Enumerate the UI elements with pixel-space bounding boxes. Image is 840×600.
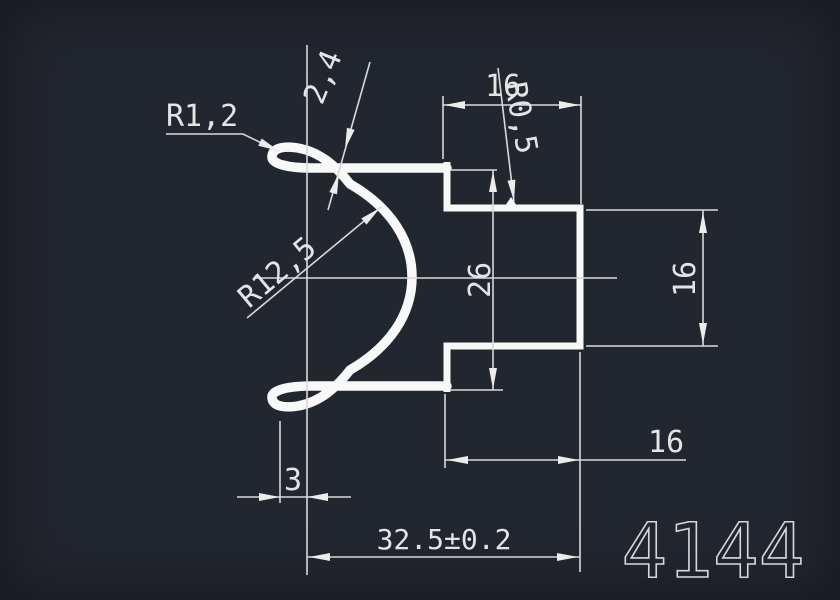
arrowhead [558, 456, 579, 464]
label-height-opening: 26 [463, 262, 498, 298]
label-height-right: 16 [668, 261, 703, 297]
label-radius-main: R12,5 [232, 230, 324, 315]
label-radius-hook-tip: R1,2 [166, 99, 238, 134]
label-hook-offset: 3 [284, 463, 302, 498]
label-radius-corner: R0,5 [497, 79, 544, 156]
arrowhead [447, 456, 468, 464]
dimension-labels: R1,2 16 R0,5 2,4 R12,5 26 16 16 3 32.5±0… [166, 46, 703, 556]
arrowhead [309, 553, 330, 561]
dimension-lines [166, 62, 718, 572]
arrowhead [341, 128, 354, 150]
arrowhead [559, 101, 580, 109]
arrowhead [259, 493, 280, 501]
technical-drawing-svg: R1,2 16 R0,5 2,4 R12,5 26 16 16 3 32.5±0… [0, 0, 840, 600]
arrowhead [444, 101, 465, 109]
drawing-number: 4144 [621, 506, 804, 595]
profile-outline [272, 147, 580, 407]
arrowhead [307, 493, 328, 501]
label-hook-thickness: 2,4 [297, 46, 350, 109]
corner-radius-bump [505, 197, 517, 206]
arrowhead [489, 171, 497, 192]
arrowhead [489, 368, 497, 389]
centerlines [255, 45, 617, 575]
label-width-overall: 32.5±0.2 [377, 523, 512, 556]
arrowhead [507, 180, 517, 202]
cad-drawing-canvas: R1,2 16 R0,5 2,4 R12,5 26 16 16 3 32.5±0… [0, 0, 840, 600]
arrowhead [557, 553, 578, 561]
arrowhead [699, 323, 707, 344]
arrowhead [699, 212, 707, 233]
label-width-step: 16 [648, 425, 684, 460]
